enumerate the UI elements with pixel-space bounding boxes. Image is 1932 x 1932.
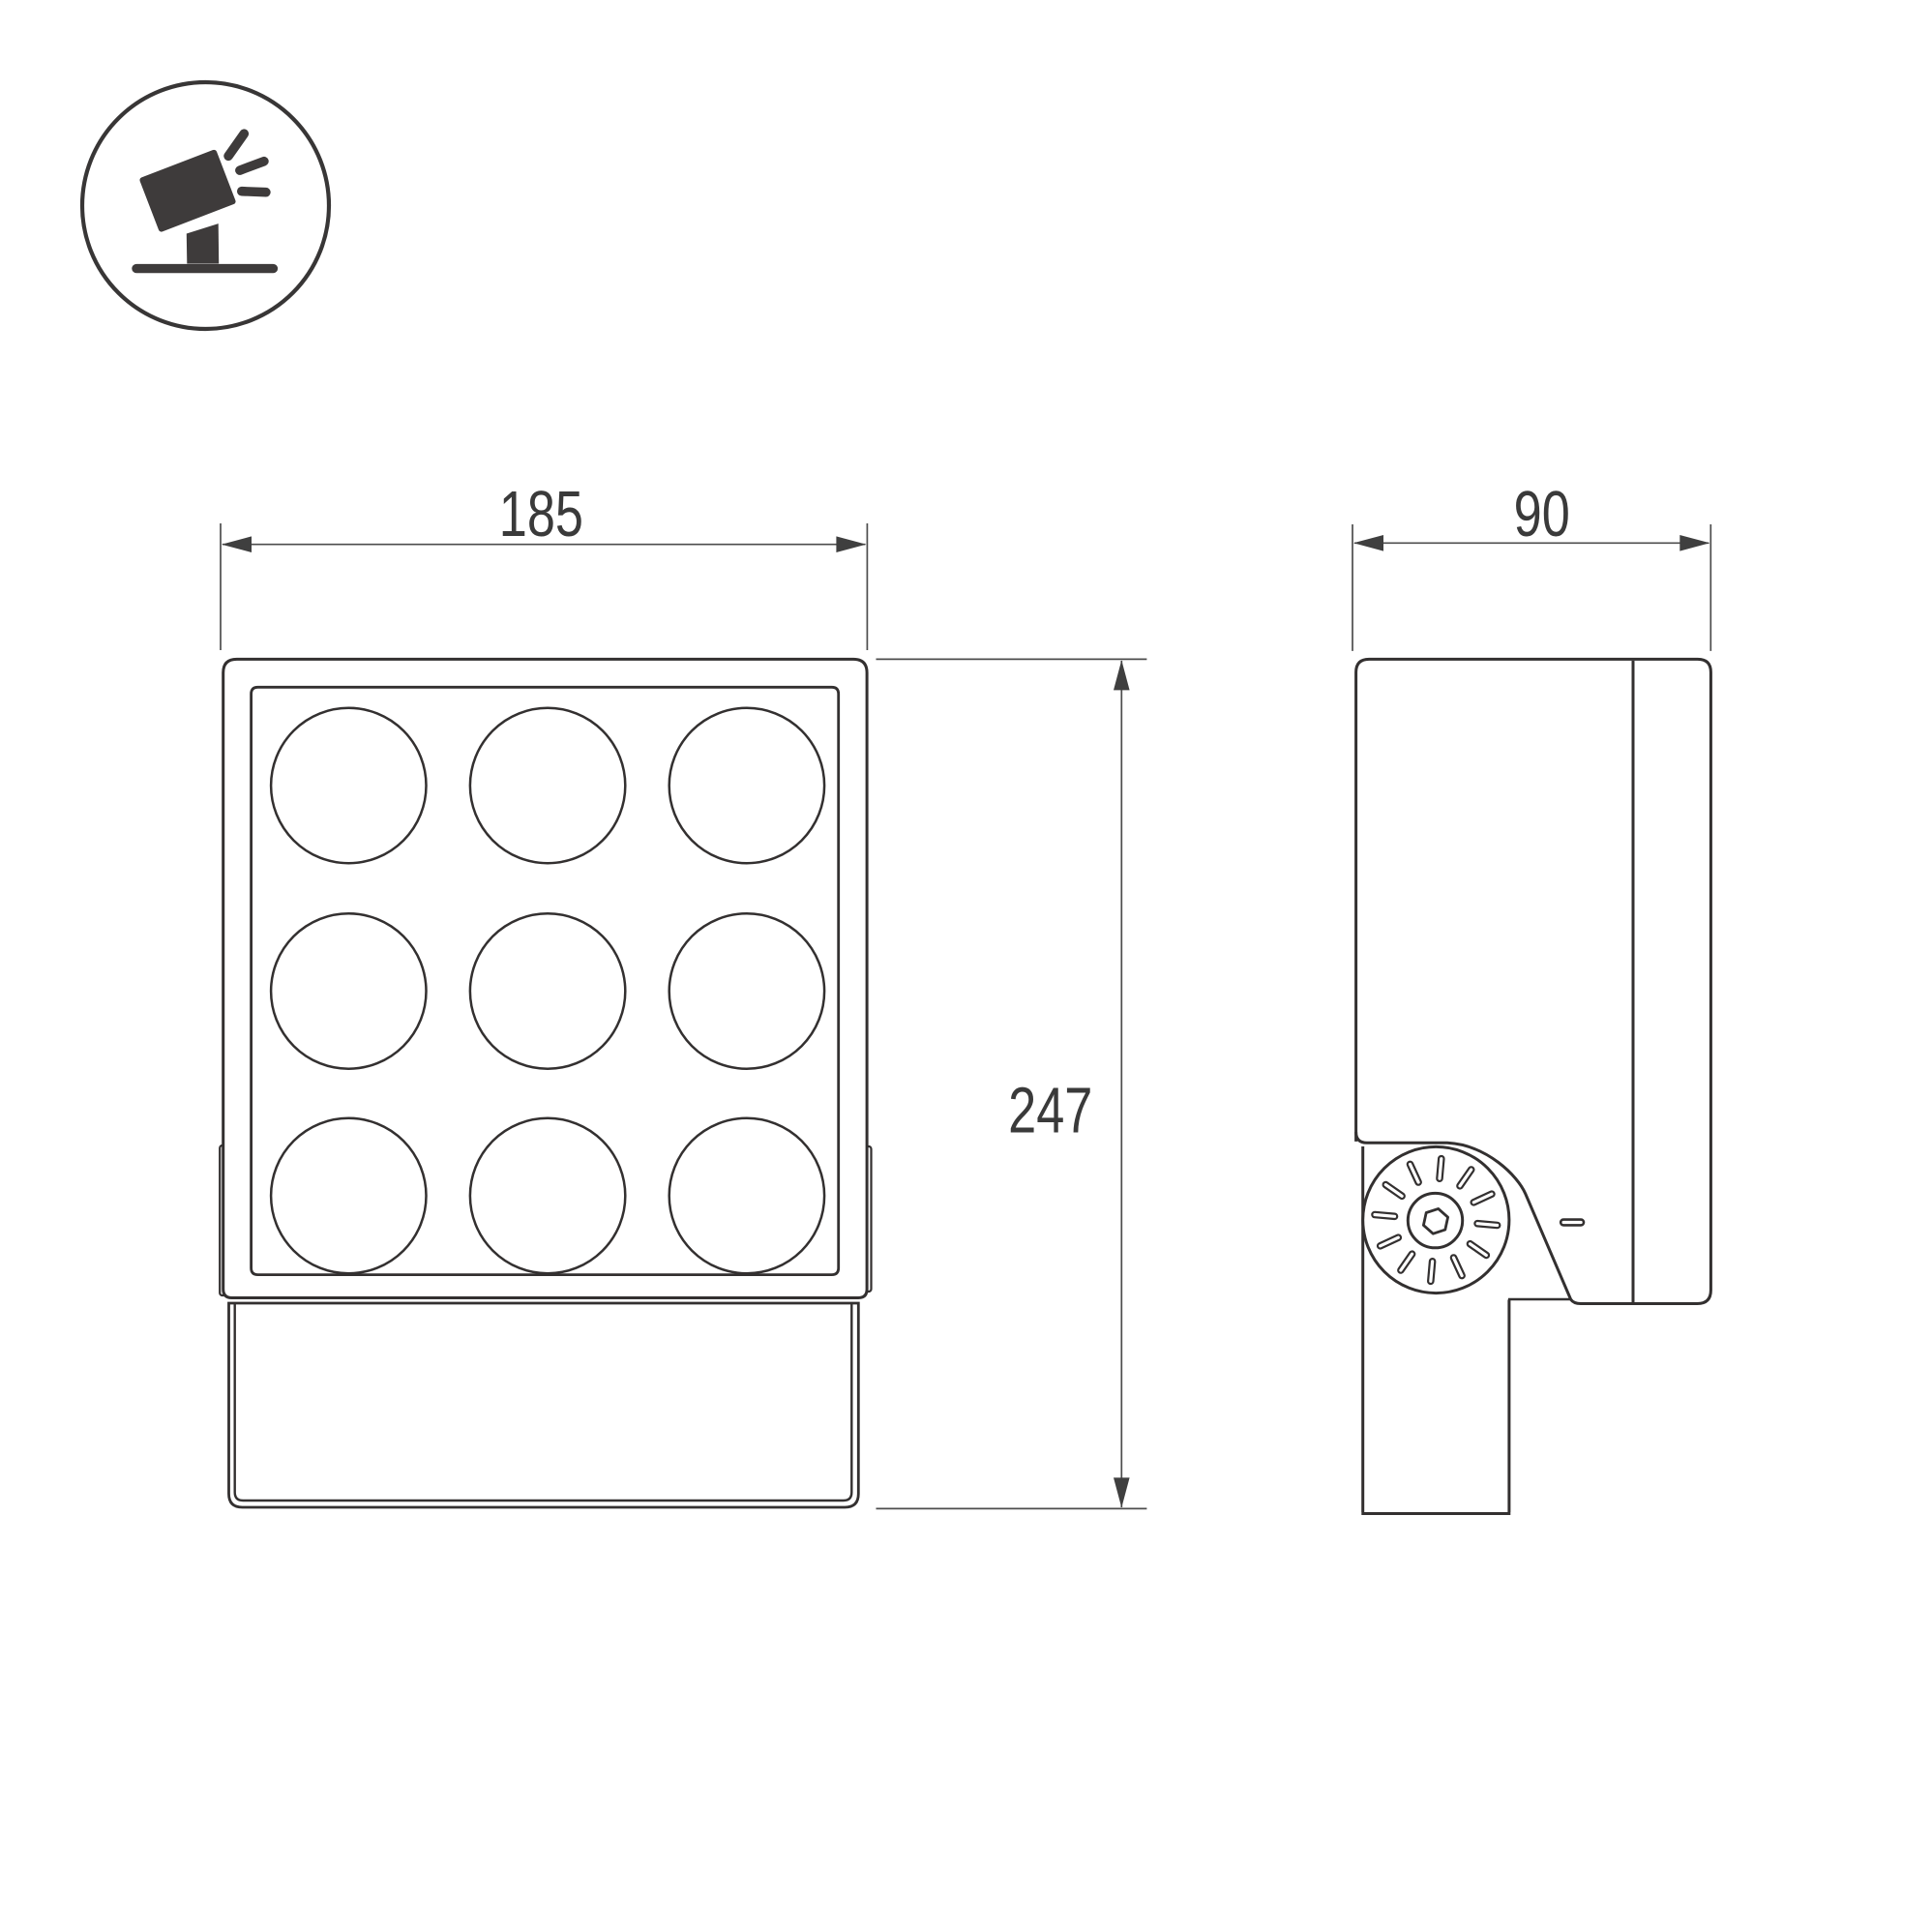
svg-text:247: 247 [1008,1074,1092,1146]
svg-text:185: 185 [499,478,583,550]
svg-text:90: 90 [1514,478,1570,550]
